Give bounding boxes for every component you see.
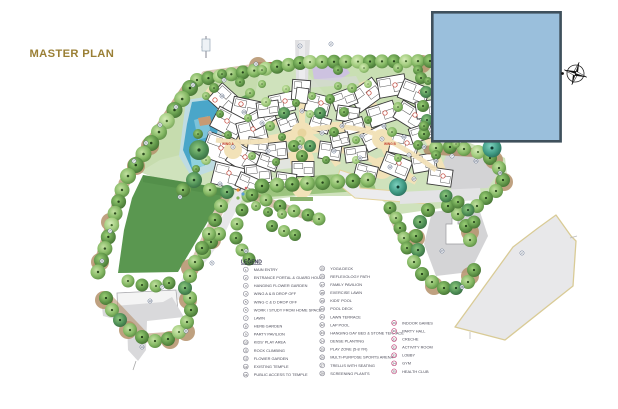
svg-text:WING B: WING B [384, 142, 397, 146]
svg-text:GYM: GYM [402, 361, 411, 366]
svg-text:FAMILY PAVILION: FAMILY PAVILION [330, 282, 362, 287]
svg-text:31: 31 [392, 337, 396, 341]
svg-text:PLAY ZONE (5-8 YR): PLAY ZONE (5-8 YR) [330, 347, 368, 352]
svg-text:WING C & D DROP OFF: WING C & D DROP OFF [254, 299, 298, 304]
svg-text:PARTY PAVILION: PARTY PAVILION [254, 332, 285, 337]
svg-text:33: 33 [392, 353, 396, 357]
svg-text:LEGEND: LEGEND [241, 260, 262, 266]
svg-text:ACTIVITY ROOM: ACTIVITY ROOM [402, 345, 433, 350]
svg-text:16: 16 [321, 275, 325, 279]
svg-text:10: 10 [244, 341, 248, 345]
svg-text:KIDS' POOL: KIDS' POOL [330, 298, 353, 303]
svg-text:LAP POOL: LAP POOL [330, 322, 350, 327]
svg-text:32: 32 [392, 345, 396, 349]
svg-text:INDOOR GAMES: INDOOR GAMES [402, 320, 433, 325]
svg-text:PUBLIC ACCESS TO TEMPLE: PUBLIC ACCESS TO TEMPLE [254, 372, 308, 377]
svg-text:ROCK CLIMBING: ROCK CLIMBING [254, 348, 285, 353]
svg-text:FLOWER GARDEN: FLOWER GARDEN [254, 356, 289, 361]
svg-text:WING A & B DROP OFF: WING A & B DROP OFF [254, 291, 297, 296]
svg-text:22: 22 [321, 323, 325, 327]
svg-text:HANGING FLOWER GARDEN: HANGING FLOWER GARDEN [254, 283, 308, 288]
svg-text:EXISTING TEMPLE: EXISTING TEMPLE [254, 364, 289, 369]
svg-text:11: 11 [244, 349, 247, 353]
svg-text:12: 12 [244, 357, 248, 361]
svg-text:YOGA DECK: YOGA DECK [330, 266, 353, 271]
svg-text:19: 19 [321, 299, 325, 303]
svg-text:28: 28 [321, 372, 325, 376]
svg-text:ENTRANCE PORTAL & GUARD HOUSE: ENTRANCE PORTAL & GUARD HOUSE [254, 275, 326, 280]
svg-text:17: 17 [321, 283, 325, 287]
svg-text:23: 23 [321, 331, 325, 335]
svg-text:LOBBY: LOBBY [402, 353, 415, 358]
svg-text:15: 15 [321, 267, 325, 271]
svg-text:WORK / STUDY FROM HOME SPACES: WORK / STUDY FROM HOME SPACES [254, 307, 325, 312]
svg-text:26: 26 [321, 355, 325, 359]
svg-text:35: 35 [392, 370, 396, 374]
svg-text:POOL DECK: POOL DECK [330, 306, 353, 311]
svg-text:PARTY HALL: PARTY HALL [402, 328, 426, 333]
svg-text:TRELLIS WITH SEATING: TRELLIS WITH SEATING [330, 363, 375, 368]
svg-text:27: 27 [321, 364, 325, 368]
svg-text:20: 20 [321, 307, 325, 311]
svg-text:DENSE PLANTING: DENSE PLANTING [330, 339, 364, 344]
svg-text:HEALTH CLUB: HEALTH CLUB [402, 369, 429, 374]
svg-text:29: 29 [392, 321, 396, 325]
svg-text:MASTER PLAN: MASTER PLAN [30, 48, 115, 60]
svg-text:LAWN: LAWN [254, 315, 265, 320]
svg-text:MULTI-PURPOSE SPORTS ARENA: MULTI-PURPOSE SPORTS ARENA [330, 355, 393, 360]
svg-text:13: 13 [244, 365, 248, 369]
svg-text:SCREENING PLANTS: SCREENING PLANTS [330, 371, 370, 376]
svg-text:30: 30 [392, 329, 396, 333]
svg-text:24: 24 [321, 339, 325, 343]
svg-text:REFLEXOLOGY PATH: REFLEXOLOGY PATH [330, 274, 370, 279]
svg-text:LAWN TERRACE: LAWN TERRACE [330, 314, 361, 319]
svg-text:34: 34 [392, 362, 396, 366]
svg-text:HERB GARDEN: HERB GARDEN [254, 324, 283, 329]
svg-text:14: 14 [244, 373, 248, 377]
svg-text:18: 18 [321, 291, 325, 295]
svg-text:KIDS' PLAY AREA: KIDS' PLAY AREA [254, 340, 286, 345]
svg-text:CRECHE: CRECHE [402, 336, 419, 341]
svg-text:EXERCISE LAWN: EXERCISE LAWN [330, 290, 362, 295]
svg-text:25: 25 [321, 347, 325, 351]
svg-text:MAIN ENTRY: MAIN ENTRY [254, 267, 278, 272]
svg-text:21: 21 [321, 315, 325, 319]
